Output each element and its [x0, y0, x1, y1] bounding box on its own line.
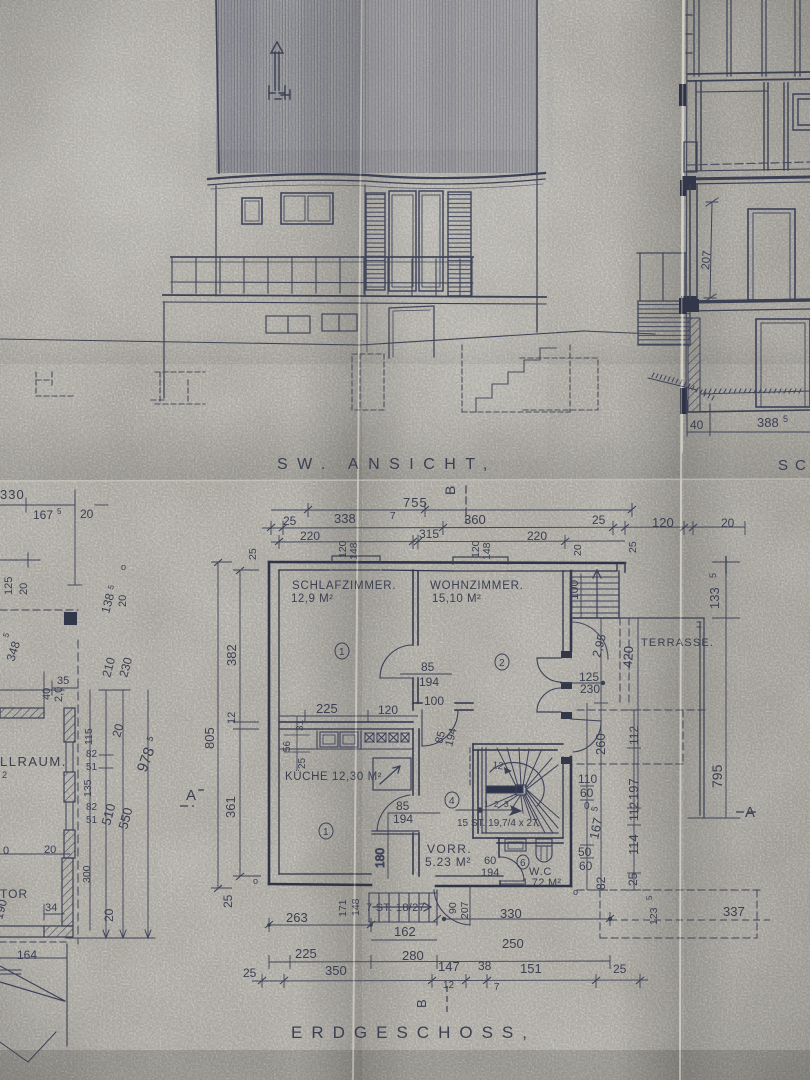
svg-text:100: 100: [567, 580, 581, 600]
svg-text:220: 220: [527, 529, 547, 543]
svg-text:38: 38: [478, 959, 492, 973]
svg-text:755: 755: [403, 495, 428, 510]
svg-text:12,9 M²: 12,9 M²: [291, 593, 334, 605]
svg-text:300: 300: [81, 865, 93, 883]
svg-text:260: 260: [593, 733, 608, 755]
svg-text:148: 148: [350, 898, 362, 916]
svg-text:20: 20: [721, 516, 735, 530]
svg-text:25: 25: [247, 548, 259, 560]
svg-text:25: 25: [613, 962, 627, 976]
svg-text:135: 135: [82, 779, 94, 797]
svg-text:60: 60: [484, 855, 496, 867]
svg-text:5: 5: [783, 414, 788, 424]
svg-text:25: 25: [297, 757, 308, 769]
svg-text:20: 20: [102, 908, 116, 922]
svg-text:263: 263: [286, 910, 308, 925]
svg-text:5.23 M²: 5.23 M²: [425, 855, 471, 869]
svg-text:20: 20: [117, 595, 129, 607]
svg-text:1: 1: [484, 799, 489, 809]
svg-text:85: 85: [421, 660, 435, 674]
svg-text:420: 420: [620, 646, 636, 668]
svg-text:230: 230: [580, 682, 600, 696]
svg-text:WOHNZIMMER.: WOHNZIMMER.: [430, 580, 524, 592]
svg-text:167: 167: [33, 508, 53, 522]
svg-text:VORR.: VORR.: [427, 842, 472, 856]
svg-text:7: 7: [390, 511, 396, 522]
svg-text:B: B: [442, 486, 458, 495]
svg-text:194: 194: [419, 675, 439, 689]
svg-text:50: 50: [578, 845, 592, 859]
svg-text:82: 82: [86, 749, 98, 760]
svg-text:82: 82: [86, 802, 98, 813]
svg-text:1: 1: [323, 827, 329, 838]
svg-text:330: 330: [0, 487, 25, 502]
svg-text:194: 194: [393, 812, 413, 826]
svg-text:90: 90: [447, 902, 459, 914]
svg-text:25: 25: [221, 894, 235, 908]
svg-text:TOR: TOR: [0, 887, 28, 901]
svg-text:25: 25: [243, 966, 257, 980]
svg-text:5: 5: [645, 895, 654, 900]
svg-text:60: 60: [580, 786, 594, 800]
svg-text:B: B: [414, 999, 429, 1008]
svg-text:25: 25: [592, 513, 606, 527]
svg-text:133: 133: [707, 587, 722, 609]
svg-text:330: 330: [500, 906, 522, 921]
svg-text:1,72 M²: 1,72 M²: [522, 877, 561, 889]
svg-text:250: 250: [502, 936, 524, 951]
svg-text:TERRASSE.: TERRASSE.: [641, 637, 714, 649]
svg-text:360: 360: [464, 512, 486, 527]
svg-text:350: 350: [325, 963, 347, 978]
svg-text:120: 120: [378, 703, 398, 717]
svg-text:7: 7: [494, 982, 500, 993]
svg-text:162: 162: [394, 924, 416, 939]
svg-text:12: 12: [226, 712, 238, 724]
svg-text:207: 207: [459, 901, 471, 919]
svg-text:125: 125: [3, 577, 15, 595]
svg-text:115: 115: [83, 728, 95, 745]
svg-text:12: 12: [443, 980, 455, 991]
svg-text:225: 225: [295, 946, 317, 961]
svg-text:5: 5: [57, 507, 62, 516]
svg-text:15 ST. 19,7/4 x 27.: 15 ST. 19,7/4 x 27.: [457, 818, 540, 829]
svg-text:805: 805: [202, 727, 217, 749]
svg-text:225: 225: [316, 701, 338, 716]
svg-text:o: o: [121, 562, 126, 572]
svg-text:82: 82: [594, 876, 608, 890]
svg-text:60: 60: [579, 859, 593, 873]
svg-text:15,10 M²: 15,10 M²: [432, 593, 481, 605]
svg-text:151: 151: [520, 961, 542, 976]
svg-text:220: 220: [300, 529, 320, 543]
svg-text:194: 194: [481, 867, 499, 879]
svg-text:100: 100: [424, 694, 444, 708]
svg-text:1: 1: [339, 647, 345, 658]
svg-text:388: 388: [757, 415, 779, 430]
svg-text:110: 110: [578, 772, 597, 786]
svg-text:180: 180: [373, 848, 387, 868]
svg-text:2: 2: [2, 770, 7, 780]
svg-text:4: 4: [449, 796, 455, 807]
svg-text:197: 197: [626, 778, 641, 800]
svg-text:112: 112: [627, 802, 641, 821]
svg-text:20: 20: [80, 507, 94, 521]
svg-text:51: 51: [86, 815, 98, 826]
svg-text:A: A: [186, 787, 196, 804]
svg-text:795: 795: [709, 764, 725, 788]
svg-text:337: 337: [723, 904, 745, 919]
svg-text:280: 280: [402, 948, 424, 963]
svg-text:40: 40: [690, 418, 704, 432]
svg-text:o: o: [253, 876, 258, 886]
svg-text:2: 2: [494, 799, 499, 809]
svg-text:5: 5: [708, 573, 718, 578]
svg-text:7 ST. 18/27: 7 ST. 18/27: [366, 902, 425, 914]
svg-text:361: 361: [223, 796, 238, 818]
svg-text:114: 114: [626, 834, 641, 855]
svg-text:o: o: [573, 887, 578, 897]
svg-text:SC: SC: [778, 457, 810, 474]
svg-text:315: 315: [419, 527, 439, 541]
svg-text:2,0: 2,0: [53, 687, 65, 702]
svg-text:148: 148: [481, 542, 493, 560]
svg-text:3: 3: [504, 799, 509, 809]
svg-text:171: 171: [337, 899, 349, 917]
svg-text:382: 382: [224, 644, 239, 666]
svg-text:KÜCHE 12,30 M²: KÜCHE 12,30 M²: [285, 771, 382, 783]
svg-text:ERDGESCHOSS,: ERDGESCHOSS,: [291, 1023, 536, 1042]
svg-text:12: 12: [492, 760, 505, 773]
svg-text:207: 207: [700, 250, 714, 270]
svg-text:25: 25: [627, 541, 639, 553]
svg-text:SCHLAFZIMMER.: SCHLAFZIMMER.: [292, 580, 396, 592]
svg-text:56: 56: [282, 740, 293, 752]
svg-text:34: 34: [45, 902, 57, 914]
svg-text:338: 338: [334, 511, 356, 526]
svg-text:SW. ANSICHT,: SW. ANSICHT,: [277, 456, 497, 473]
svg-text:LLRAUM.: LLRAUM.: [0, 754, 67, 769]
svg-text:85: 85: [396, 799, 410, 813]
svg-text:123: 123: [648, 907, 660, 925]
svg-text:0: 0: [3, 845, 9, 857]
svg-text:20: 20: [18, 583, 30, 595]
svg-text:35: 35: [57, 675, 69, 687]
svg-text:112: 112: [627, 726, 641, 745]
svg-text:120: 120: [652, 515, 674, 530]
svg-text:147: 147: [438, 959, 460, 974]
svg-text:20: 20: [572, 544, 584, 556]
svg-text:25: 25: [626, 872, 640, 886]
svg-text:164: 164: [17, 948, 37, 962]
svg-text:51: 51: [86, 762, 98, 773]
svg-text:2: 2: [499, 658, 505, 669]
svg-text:6: 6: [520, 858, 526, 869]
